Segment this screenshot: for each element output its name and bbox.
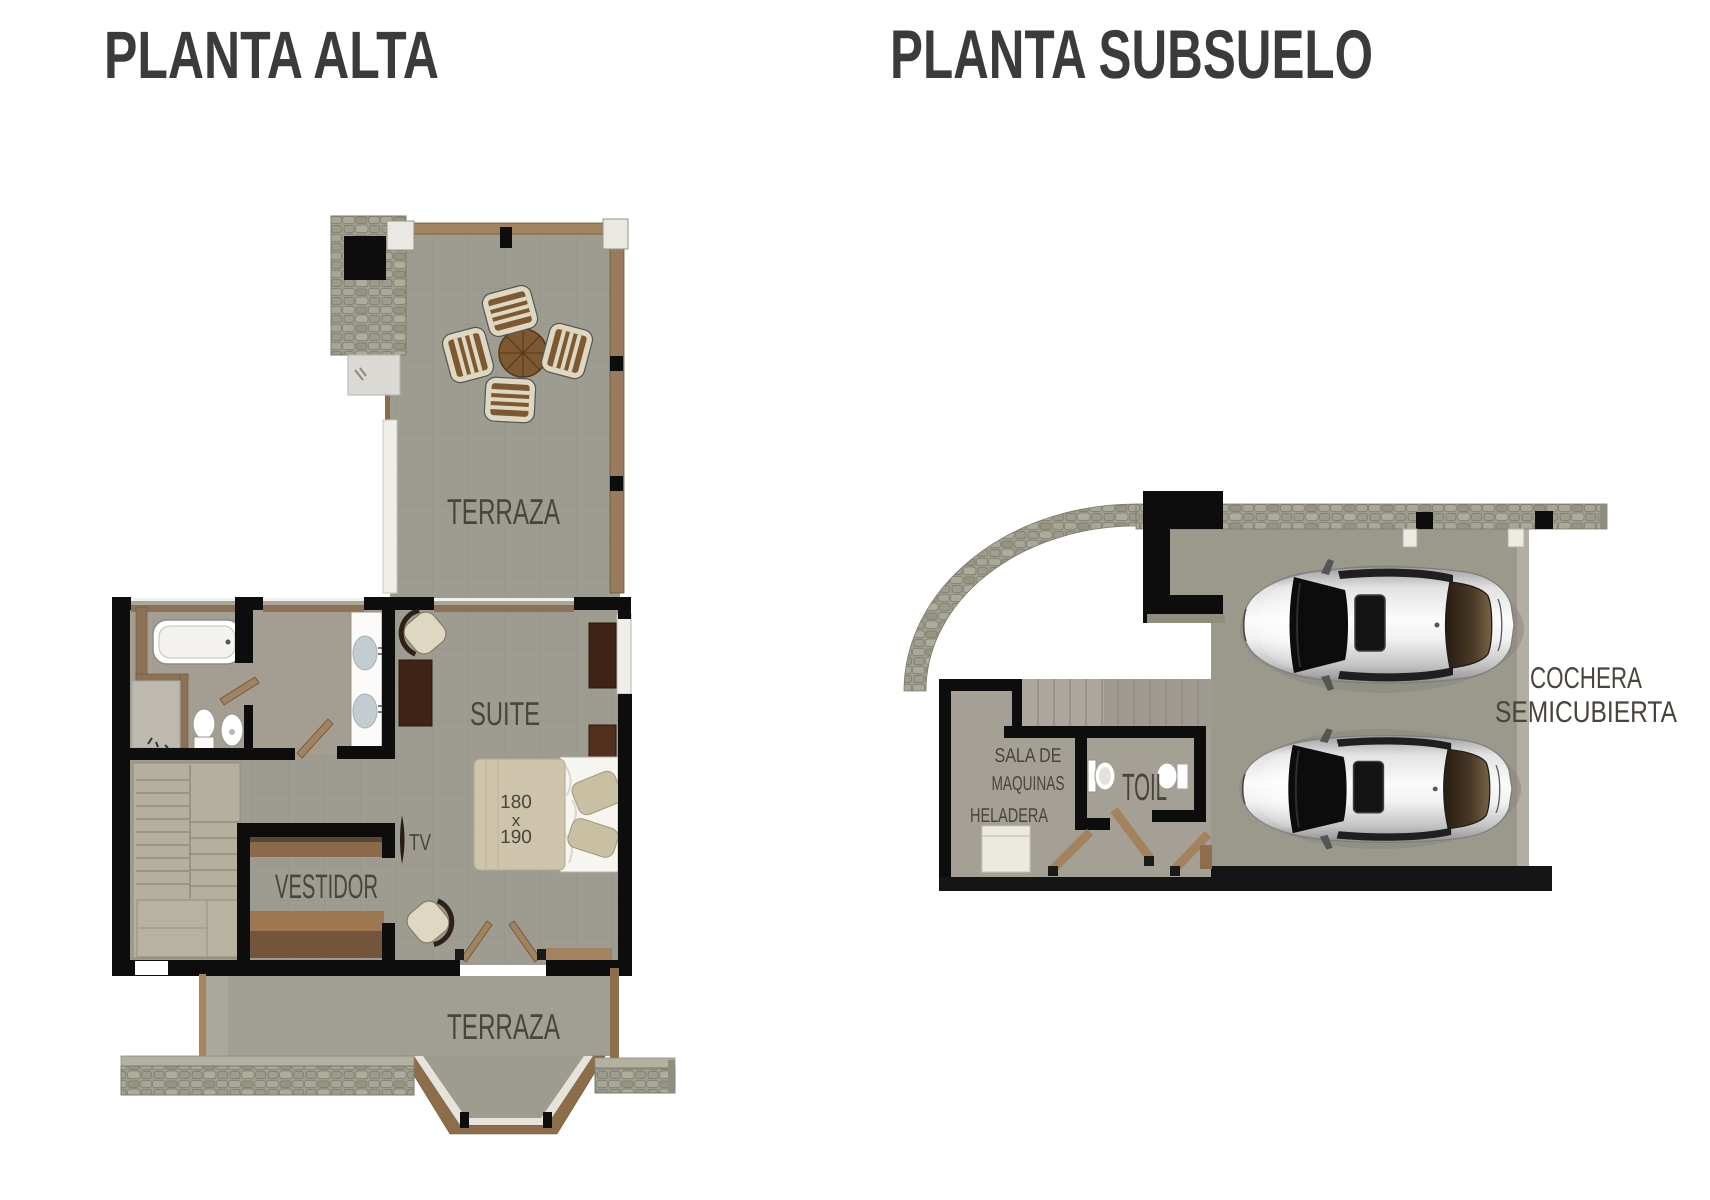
svg-text:SALA DE: SALA DE — [995, 745, 1062, 767]
svg-text:TERRAZA: TERRAZA — [447, 491, 560, 532]
svg-text:HELADERA: HELADERA — [970, 805, 1048, 827]
svg-text:TOIL: TOIL — [1122, 767, 1167, 809]
svg-text:PLANTA ALTA: PLANTA ALTA — [104, 18, 439, 93]
svg-text:TV: TV — [409, 829, 431, 855]
svg-text:MAQUINAS: MAQUINAS — [992, 773, 1065, 795]
svg-text:SUITE: SUITE — [470, 695, 540, 732]
svg-text:COCHERA: COCHERA — [1530, 662, 1642, 695]
svg-text:TERRAZA: TERRAZA — [447, 1006, 560, 1047]
svg-text:PLANTA SUBSUELO: PLANTA SUBSUELO — [890, 16, 1373, 93]
svg-text:VESTIDOR: VESTIDOR — [275, 868, 378, 906]
svg-text:SEMICUBIERTA: SEMICUBIERTA — [1495, 696, 1677, 729]
svg-text:190: 190 — [500, 827, 532, 848]
svg-text:180: 180 — [500, 792, 532, 813]
